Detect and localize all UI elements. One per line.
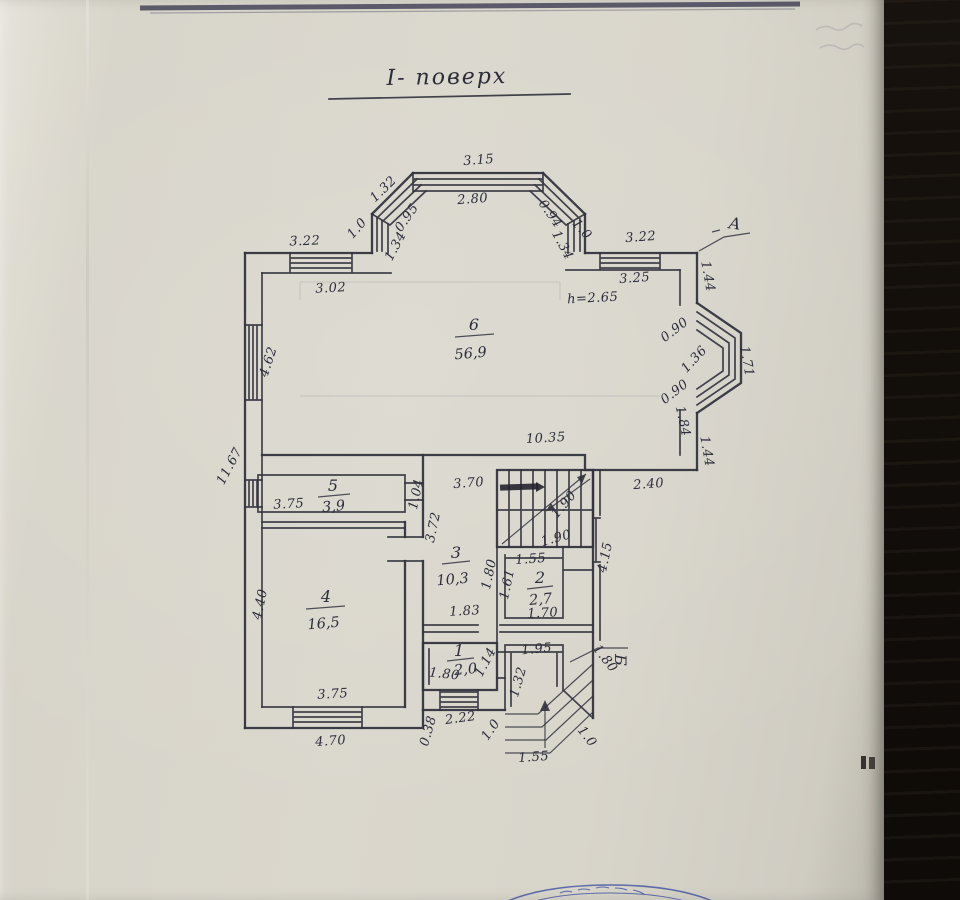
dim-top-left-wall: 3.22 bbox=[289, 233, 320, 249]
dim-top-right-wall: 3.22 bbox=[625, 229, 657, 246]
dim-room2-top: 1.55 bbox=[515, 551, 547, 568]
room-2-number: 2 bbox=[534, 568, 545, 587]
dim-top-left-inner: 3.02 bbox=[315, 280, 347, 297]
room-5-area: 3,9 bbox=[321, 498, 345, 516]
dim-left-window: 4.62 bbox=[256, 345, 280, 380]
dim-hall-right: 2.40 bbox=[632, 476, 665, 493]
dim-bay-top-inner: 2.80 bbox=[456, 191, 489, 208]
dim-step-left: 1.0 bbox=[479, 717, 504, 744]
dim-step-right: 1.0 bbox=[574, 723, 599, 750]
walls bbox=[245, 173, 741, 753]
dim-height-note: h=2.65 bbox=[567, 290, 619, 308]
dim-room3-bottom: 1.83 bbox=[449, 603, 481, 620]
floor-plan-drawing: І- поверх bbox=[0, 0, 960, 900]
dim-bay-right-wall: 1.34 bbox=[548, 228, 576, 262]
dim-hall-left: 3.72 bbox=[423, 511, 444, 544]
dim-room4-outer: 4.70 bbox=[314, 733, 347, 750]
room-1-number: 1 bbox=[454, 641, 464, 660]
room-3-number: 3 bbox=[451, 543, 461, 562]
official-stamp bbox=[490, 885, 730, 900]
page-edge-line bbox=[140, 4, 800, 13]
photo-scene: І- поверх bbox=[0, 0, 960, 900]
dim-hall-top: 3.70 bbox=[453, 475, 485, 492]
dim-room6-width: 10.35 bbox=[526, 430, 566, 447]
dim-left-total: 11.67 bbox=[214, 445, 246, 487]
room-6-number: 6 bbox=[469, 315, 479, 334]
dim-right-lower-a: 1.84 bbox=[672, 405, 693, 438]
dim-right-upper: 1.44 bbox=[697, 260, 717, 293]
dim-bay-left-side: 1.0 bbox=[344, 215, 370, 242]
room-6-area: 56,9 bbox=[454, 345, 488, 364]
dim-right-bay-top: 0.90 bbox=[658, 315, 692, 346]
axis-markers: А Б bbox=[570, 213, 750, 666]
dim-right-bay-side: 1.71 bbox=[736, 345, 756, 378]
dim-bottom-wall: 2.22 bbox=[443, 709, 477, 728]
dim-bottom-jog: 0.38 bbox=[417, 714, 440, 748]
dim-top-right-inner: 3.25 bbox=[619, 270, 651, 287]
dim-bay-right-inner: 0.94 bbox=[535, 197, 565, 231]
dim-right-lower-b: 1.44 bbox=[696, 435, 716, 468]
edge-marks bbox=[861, 756, 875, 769]
axis-a-label: А bbox=[726, 213, 742, 234]
dim-right-bay-diag: 1.36 bbox=[678, 343, 710, 376]
entry-arrow bbox=[540, 700, 550, 748]
room-3-area: 10,3 bbox=[436, 571, 470, 590]
dim-room4-len: 3.75 bbox=[317, 686, 349, 703]
dim-porch-top: 1.95 bbox=[521, 641, 553, 659]
room-2-area: 2,7 bbox=[527, 591, 553, 609]
room-4-area: 16,5 bbox=[307, 615, 341, 634]
room-5-number: 5 bbox=[328, 476, 338, 495]
dim-stairs-a: 1.90 bbox=[549, 488, 580, 521]
dimension-labels: 3.15 1.32 2.80 0.95 1.34 0.94 1.34 1.0 1… bbox=[214, 152, 757, 766]
room-4-number: 4 bbox=[320, 587, 331, 606]
room-1-area: 2,0 bbox=[452, 661, 477, 679]
dim-room2-in: 1.61 bbox=[497, 568, 518, 601]
dim-bay-left-wall: 1.34 bbox=[382, 229, 410, 263]
dim-room4-height: 4.40 bbox=[250, 588, 271, 622]
dim-room5-len: 3.75 bbox=[273, 496, 305, 513]
page-title: І- поверх bbox=[385, 64, 507, 91]
title-underline bbox=[329, 94, 570, 99]
dim-hall-side: 4.15 bbox=[595, 541, 616, 575]
pencil-scribbles bbox=[816, 24, 864, 50]
dim-bay-top: 3.15 bbox=[463, 152, 495, 169]
dim-right-bay-bottom: 0.90 bbox=[658, 377, 692, 408]
dim-porch-bottom: 1.55 bbox=[518, 749, 550, 766]
title-block: І- поверх bbox=[329, 64, 570, 99]
